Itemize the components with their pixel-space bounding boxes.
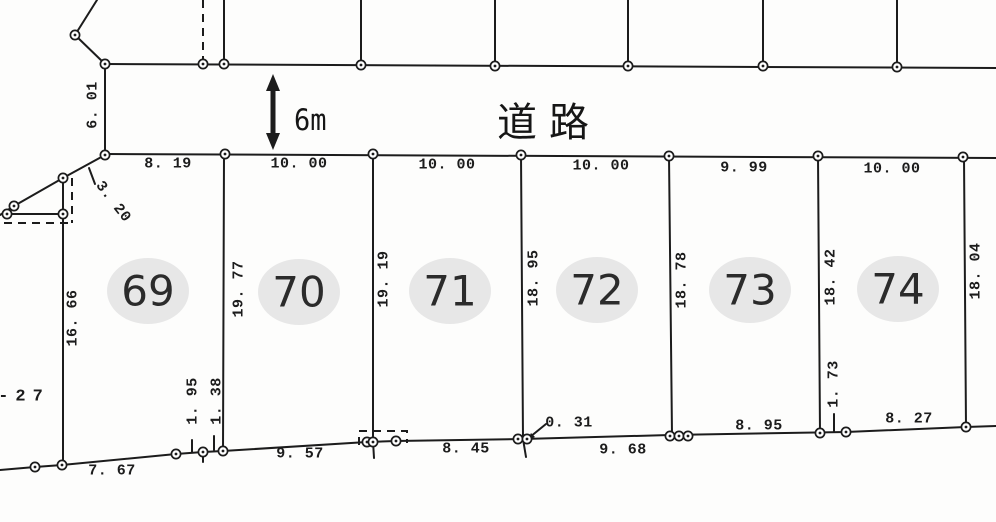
survey-point-dot (175, 453, 178, 456)
survey-point-dot (202, 63, 205, 66)
survey-point-dot (395, 440, 398, 443)
dimension-label: 18. 78 (674, 251, 691, 308)
dimension-label: 10. 00 (418, 157, 475, 174)
boundary-line (75, 0, 97, 35)
dimension-label: 18. 95 (526, 249, 543, 306)
survey-plat-page: 6970717273748. 1910. 0010. 0010. 009. 99… (0, 0, 996, 522)
survey-point-dot (526, 438, 529, 441)
boundary-line (521, 155, 523, 439)
dimension-label: 1. 95 (185, 377, 202, 425)
survey-point-dot (845, 431, 848, 434)
survey-point-dot (819, 432, 822, 435)
dimension-label: 10. 00 (572, 158, 629, 175)
survey-point-dot (517, 438, 520, 441)
survey-point-dot (6, 213, 9, 216)
dimension-label: 8. 95 (735, 418, 783, 435)
survey-point-dot (360, 64, 363, 67)
survey-point-dot (222, 450, 225, 453)
boundary-line (669, 156, 672, 435)
plot-74-number: 74 (871, 265, 924, 314)
survey-point-dot (762, 65, 765, 68)
plot-69-number: 69 (121, 267, 174, 316)
survey-point-dot (223, 63, 226, 66)
boundary-line (105, 64, 996, 68)
dimension-label: 18. 42 (823, 248, 840, 305)
dimension-label: 1. 38 (209, 377, 226, 425)
survey-point-dot (627, 65, 630, 68)
survey-point-dot (61, 464, 64, 467)
arrowhead (266, 74, 280, 91)
boundary-line (89, 168, 95, 184)
dimension-label: 9. 99 (720, 160, 768, 177)
plot-72-number: 72 (570, 266, 623, 315)
dimension-label: 7. 67 (88, 463, 136, 480)
survey-point-dot (962, 156, 965, 159)
survey-point-dot (224, 153, 227, 156)
dimension-label: 10. 00 (863, 161, 920, 178)
boundary-line (964, 157, 966, 427)
boundary-line (818, 156, 820, 433)
survey-point-dot (13, 205, 16, 208)
survey-point-dot (896, 66, 899, 69)
road-width-label: 6m (294, 103, 327, 137)
survey-point-dot (372, 441, 375, 444)
survey-point-dot (520, 154, 523, 157)
boundary-line (75, 35, 105, 64)
survey-point-dot (104, 63, 107, 66)
dimension-label: 19. 19 (376, 250, 393, 307)
survey-point-dot (372, 153, 375, 156)
dimension-label: 16. 66 (65, 289, 82, 346)
dimension-label: 9. 57 (276, 446, 324, 463)
plot-71-number: 71 (423, 267, 476, 316)
survey-point-dot (669, 435, 672, 438)
survey-point-dot (687, 435, 690, 438)
survey-point-dot (34, 466, 37, 469)
road-label: 道路 (497, 90, 601, 148)
survey-point-dot (62, 213, 65, 216)
survey-point-dot (965, 426, 968, 429)
boundary-line (105, 154, 996, 158)
survey-point-dot (668, 155, 671, 158)
survey-map: 6970717273748. 1910. 0010. 0010. 009. 99… (0, 0, 996, 522)
survey-point-dot (74, 34, 77, 37)
dimension-label: 9. 68 (599, 442, 647, 459)
dimension-label: 1. 73 (826, 360, 843, 408)
dimension-label: 8. 45 (442, 441, 490, 458)
survey-point-dot (202, 451, 205, 454)
dimension-label: 3. 20 (92, 178, 135, 226)
dimension-label: 8. 19 (144, 156, 192, 173)
dimension-label: 18. 04 (968, 242, 985, 299)
dimension-label: -27 (0, 388, 50, 407)
survey-point-dot (494, 65, 497, 68)
dimension-label: 0. 31 (545, 415, 593, 432)
dimension-label: 8. 27 (885, 411, 933, 428)
survey-point-dot (104, 154, 107, 157)
dimension-label: 6. 01 (85, 81, 102, 129)
survey-point-dot (817, 155, 820, 158)
dimension-label: 19. 77 (231, 260, 248, 317)
plot-70-number: 70 (272, 268, 325, 317)
arrowhead (266, 133, 280, 150)
plot-73-number: 73 (723, 266, 776, 315)
dimension-label: 10. 00 (270, 156, 327, 173)
survey-point-dot (62, 177, 65, 180)
survey-point-dot (678, 435, 681, 438)
